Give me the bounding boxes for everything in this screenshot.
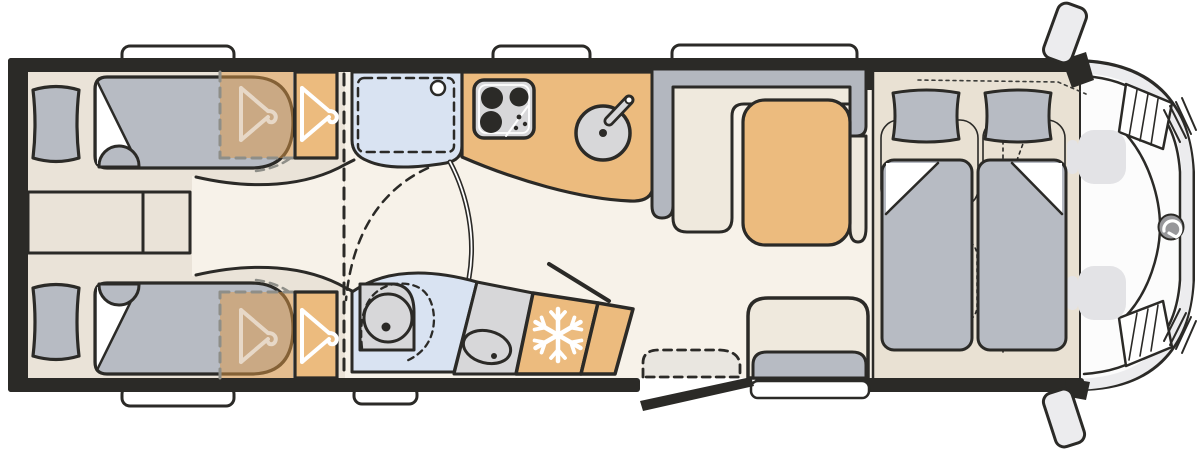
bedside-chest [28,192,143,253]
hob-burner [480,111,502,133]
entry-door-open-leaf [640,377,754,411]
bed-pillow [893,90,959,142]
cab-seat [1078,130,1126,184]
l-shaped-dinette [652,69,866,245]
wardrobe-overlay [220,292,293,378]
entry-step-dashed [643,350,740,377]
basin-drain [491,353,497,359]
shower-cubicle [352,72,462,167]
bedside-chest-step [143,192,190,253]
side-bench-cushion [753,352,866,378]
shower-drain [431,81,445,95]
floorplan-svg [0,0,1200,451]
wall-bottom-left [8,378,640,392]
cab-seat-headrest [1067,276,1078,310]
dinette-seat-cream-right [850,136,866,242]
hob-burner [510,88,529,107]
hob-knob [523,122,527,126]
wall-left [8,58,28,392]
cab-front [1079,61,1196,389]
hob-knob [517,115,522,120]
motorhome-floorplan [0,0,1200,451]
toilet-flush [382,323,391,332]
bed-pillow [985,90,1051,142]
brand-logo-swirl-icon [1159,215,1184,240]
sink-tap-head [626,97,633,104]
wall-top [8,58,1084,72]
dinette-table [743,100,850,245]
toilet-bowl [364,294,412,342]
bed-pillow [33,87,79,162]
fridge-unit [516,293,633,374]
hob-knob [514,126,518,130]
bed-pillow [33,285,79,360]
wardrobe-overlay [220,72,293,158]
cab-seat-headrest [1067,140,1078,174]
cab-seat [1078,266,1126,320]
sink-drain [599,129,607,137]
hob-burner [481,87,503,109]
entry-threshold-step [751,381,869,398]
